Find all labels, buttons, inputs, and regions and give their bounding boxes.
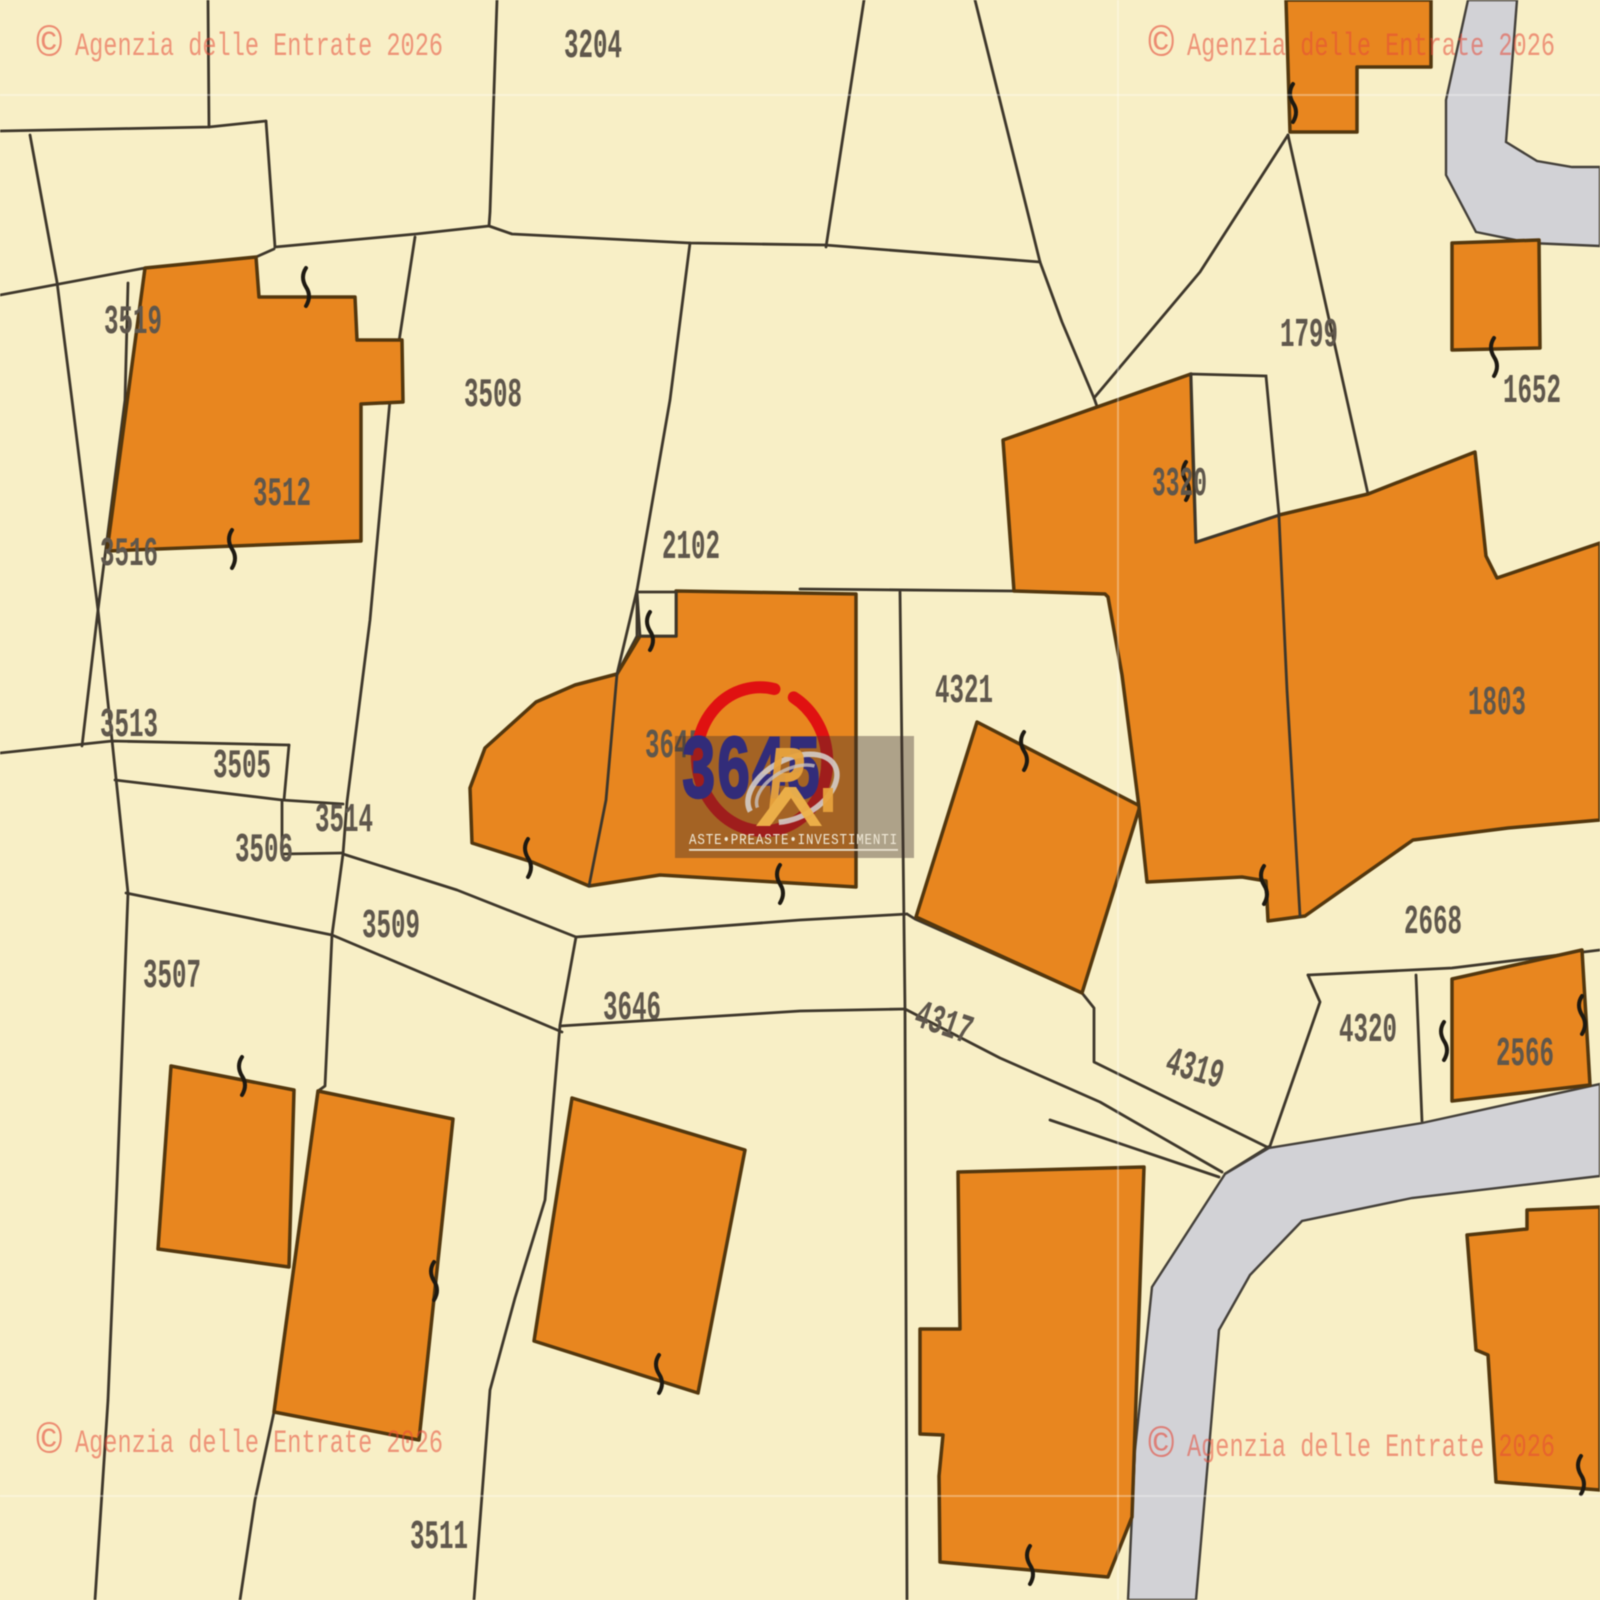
svg-text:2102: 2102 [662,525,720,571]
svg-text:3320: 3320 [1152,462,1207,508]
svg-text:Agenzia delle Entrate 2026: Agenzia delle Entrate 2026 [75,1425,443,1462]
svg-text:3516: 3516 [100,532,158,578]
svg-text:Agenzia delle Entrate 2026: Agenzia delle Entrate 2026 [1187,1429,1555,1466]
svg-text:1799: 1799 [1280,313,1338,359]
svg-text:3519: 3519 [104,300,162,346]
svg-text:4320: 4320 [1339,1008,1397,1054]
svg-text:3513: 3513 [100,703,158,749]
svg-text:3506: 3506 [235,828,293,874]
svg-text:3511: 3511 [410,1515,468,1561]
svg-text:3509: 3509 [362,904,420,950]
svg-text:4321: 4321 [935,669,993,715]
svg-text:1803: 1803 [1468,681,1526,727]
svg-text:©: © [1148,1422,1174,1472]
svg-text:3507: 3507 [143,954,201,1000]
svg-text:3646: 3646 [603,986,661,1032]
svg-text:1652: 1652 [1503,369,1561,415]
svg-text:2668: 2668 [1404,900,1462,946]
svg-text:©: © [36,21,62,71]
svg-text:3204: 3204 [564,24,622,70]
svg-text:2566: 2566 [1496,1032,1554,1078]
svg-text:3514: 3514 [315,798,373,844]
svg-text:Agenzia delle Entrate 2026: Agenzia delle Entrate 2026 [75,28,443,65]
svg-text:3512: 3512 [253,472,311,518]
svg-text:©: © [1148,21,1174,71]
svg-text:©: © [36,1418,62,1468]
svg-text:3508: 3508 [464,373,522,419]
svg-text:ASTE•PREASTE•INVESTIMENTI: ASTE•PREASTE•INVESTIMENTI [689,833,898,849]
svg-text:3505: 3505 [213,744,271,790]
svg-text:Agenzia delle Entrate 2026: Agenzia delle Entrate 2026 [1187,28,1555,65]
